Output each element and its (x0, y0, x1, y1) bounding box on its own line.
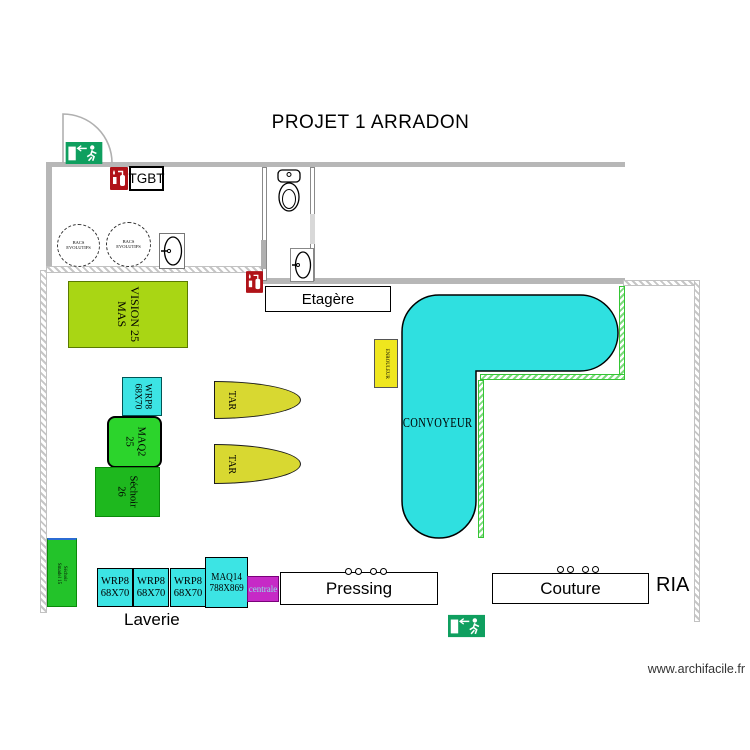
wall-right (694, 280, 700, 622)
tgbt-box[interactable]: TGBT (129, 166, 164, 191)
machine-enrouleur[interactable]: ENROULEUR (374, 339, 398, 388)
conveyor-label: CONVOYEUR (397, 415, 479, 431)
bac-label: EVOLUTIFS (66, 246, 91, 251)
toilet-fixture[interactable] (272, 168, 308, 216)
machine-label: Séchoir (127, 476, 139, 508)
machine-maq14[interactable]: MAQ14 788X869 (205, 557, 248, 608)
machine-label: WRP8 (137, 576, 166, 588)
machine-label: WRP8 (101, 576, 130, 588)
sink-fixture[interactable] (290, 248, 314, 282)
machine-tar[interactable]: TAR (214, 381, 301, 419)
pressing-label: Pressing (326, 579, 392, 599)
wall-left (46, 162, 52, 272)
machine-label: 26 (116, 476, 128, 508)
outlet-symbol (557, 566, 599, 573)
machine-label: 68X70 (174, 588, 203, 600)
wall-top-right (623, 280, 700, 286)
wall-left-partition (40, 270, 47, 613)
floor-plan: PROJET 1 ARRADON (0, 0, 750, 750)
machine-label: WRP8 (174, 576, 203, 588)
couture-box[interactable]: Couture (492, 573, 649, 604)
machine-label: MAS (115, 287, 128, 343)
machine-label: 25 (123, 427, 135, 457)
machine-tar[interactable]: TAR (214, 444, 301, 484)
machine-wrp8[interactable]: WRP8 68X70 (133, 568, 169, 607)
couture-label: Couture (540, 579, 600, 599)
machine-sechoir-left[interactable]: Séchoir Smadel 15 (47, 538, 77, 607)
machine-label: TAR (226, 454, 237, 473)
sink-fixture[interactable] (159, 233, 185, 269)
machine-wrp8[interactable]: WRP8 68X70 (97, 568, 133, 607)
wall-under-bacs (46, 266, 264, 273)
machine-label: WRP8 (142, 384, 152, 410)
machine-label: MAQ2 (134, 427, 146, 457)
machine-label: centrale (249, 584, 277, 594)
machine-label: VISION 25 (128, 287, 141, 343)
machine-vision-25-mas[interactable]: VISION 25 MAS (68, 281, 188, 348)
pressing-box[interactable]: Pressing (280, 572, 438, 605)
machine-label: Séchoir (62, 562, 68, 583)
exit-sign-icon[interactable] (64, 142, 104, 164)
machine-sechoir-26[interactable]: Séchoir 26 (95, 467, 160, 517)
machine-label: MAQ14 (209, 572, 243, 583)
guard-rail (480, 374, 625, 380)
bac-circle[interactable]: BACS EVOLUTIFS (106, 222, 151, 267)
machine-wrp8[interactable]: WRP8 68X70 (170, 568, 206, 607)
bathroom-door[interactable] (261, 240, 266, 269)
machine-label: 68X70 (101, 588, 130, 600)
machine-wrp8-vertical[interactable]: WRP8 68X70 (122, 377, 162, 416)
etagere-box[interactable]: Etagère (265, 286, 391, 312)
machine-label: ENROULEUR (383, 348, 389, 378)
bathroom-right-door[interactable] (310, 214, 315, 244)
machine-label: 788X869 (209, 583, 243, 594)
laverie-label: Laverie (124, 610, 180, 630)
machine-label: 68X70 (137, 588, 166, 600)
extinguisher-icon[interactable] (110, 167, 128, 190)
bac-label: EVOLUTIFS (116, 245, 141, 250)
ria-label: RIA (656, 574, 700, 597)
guard-rail (478, 380, 484, 538)
tgbt-label: TGBT (129, 171, 165, 186)
machine-label: 68X70 (132, 384, 142, 410)
extinguisher-icon[interactable] (246, 271, 263, 293)
exit-sign-icon[interactable] (448, 614, 485, 638)
outlet-symbol (345, 568, 387, 575)
page-title: PROJET 1 ARRADON (248, 112, 493, 134)
watermark: www.archifacile.fr (630, 662, 745, 676)
etagere-label: Etagère (302, 291, 355, 308)
guard-rail (619, 286, 625, 379)
bac-circle[interactable]: BACS EVOLUTIFS (57, 224, 100, 267)
machine-label: TAR (226, 390, 237, 409)
machine-centrale[interactable]: centrale (247, 576, 279, 602)
machine-maq2[interactable]: MAQ2 25 (107, 416, 162, 468)
